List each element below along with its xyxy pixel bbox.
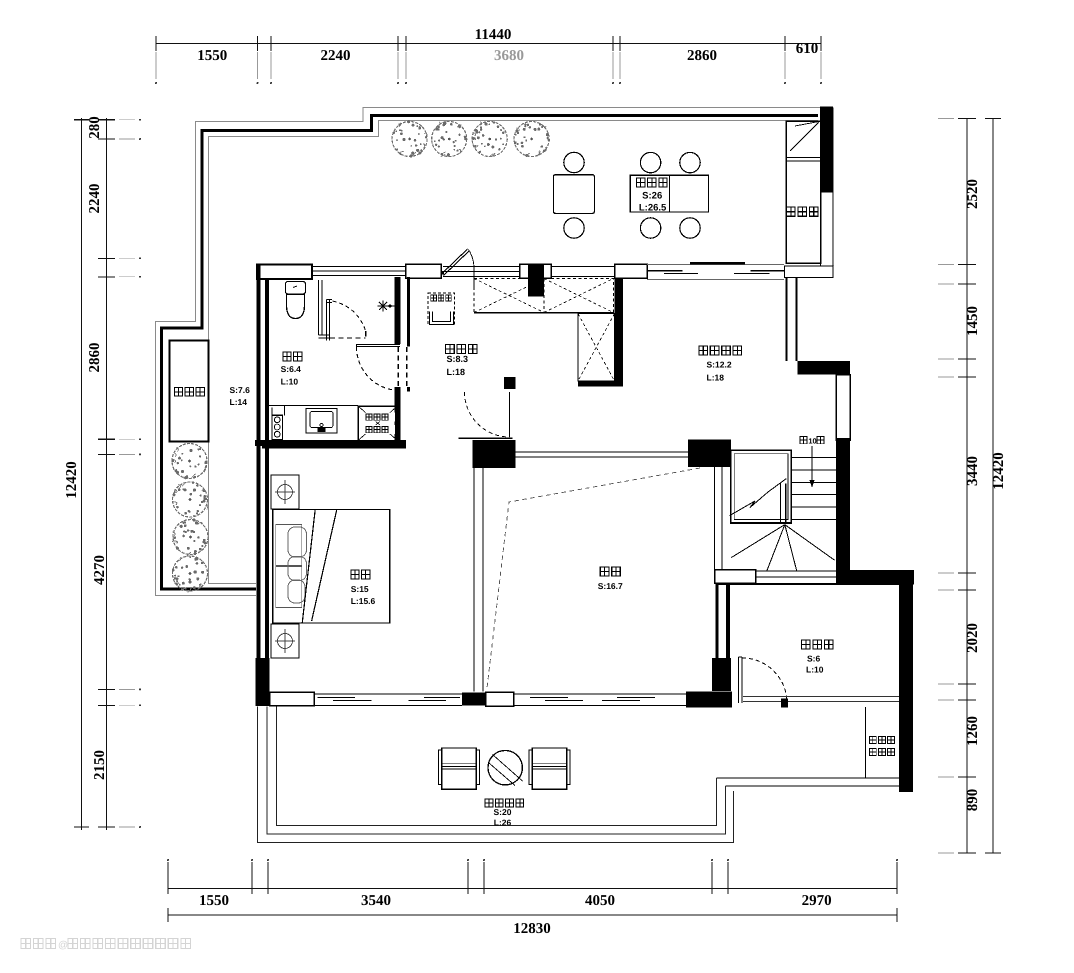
svg-text:L:10: L:10 bbox=[806, 665, 824, 675]
svg-text:S:20: S:20 bbox=[494, 807, 512, 817]
svg-text:2020: 2020 bbox=[965, 623, 981, 653]
svg-text:2860: 2860 bbox=[87, 343, 103, 373]
svg-text:S:7.6: S:7.6 bbox=[230, 385, 251, 395]
svg-text:12420: 12420 bbox=[991, 452, 1007, 490]
svg-text:12830: 12830 bbox=[513, 921, 551, 937]
svg-text:L:10: L:10 bbox=[281, 377, 299, 387]
svg-text:L:15.6: L:15.6 bbox=[351, 596, 376, 606]
svg-text:S:6.4: S:6.4 bbox=[281, 364, 302, 374]
svg-text:2520: 2520 bbox=[965, 179, 981, 209]
svg-text:12420: 12420 bbox=[64, 461, 80, 499]
svg-text:2240: 2240 bbox=[321, 48, 351, 64]
svg-text:2860: 2860 bbox=[687, 48, 717, 64]
svg-text:S:26: S:26 bbox=[642, 191, 662, 202]
svg-text:S:16.7: S:16.7 bbox=[598, 581, 623, 591]
svg-text:S:15: S:15 bbox=[351, 584, 369, 594]
svg-text:L:14: L:14 bbox=[230, 397, 248, 407]
svg-text:890: 890 bbox=[965, 789, 981, 812]
svg-text:L:26: L:26 bbox=[494, 818, 512, 828]
svg-text:1260: 1260 bbox=[965, 716, 981, 746]
svg-text:4270: 4270 bbox=[92, 555, 108, 585]
svg-text:280: 280 bbox=[87, 116, 103, 139]
svg-text:L:18: L:18 bbox=[707, 373, 725, 383]
svg-text:S:12.2: S:12.2 bbox=[707, 360, 732, 370]
svg-text:2970: 2970 bbox=[802, 893, 832, 909]
svg-text:S:8.3: S:8.3 bbox=[447, 354, 469, 364]
svg-text:L:18: L:18 bbox=[447, 367, 466, 377]
svg-text:2240: 2240 bbox=[87, 184, 103, 214]
svg-text:3540: 3540 bbox=[361, 893, 391, 909]
svg-text:2150: 2150 bbox=[92, 750, 108, 780]
svg-text:@: @ bbox=[58, 940, 68, 951]
svg-text:610: 610 bbox=[796, 41, 819, 57]
svg-text:L:26.5: L:26.5 bbox=[639, 203, 667, 214]
svg-text:11440: 11440 bbox=[475, 27, 512, 43]
svg-text:3680: 3680 bbox=[494, 48, 524, 64]
svg-text:1550: 1550 bbox=[199, 893, 229, 909]
svg-text:1550: 1550 bbox=[197, 48, 227, 64]
svg-text:3440: 3440 bbox=[965, 456, 981, 486]
svg-text:1450: 1450 bbox=[965, 306, 981, 336]
svg-text:10: 10 bbox=[808, 437, 816, 446]
svg-text:S:6: S:6 bbox=[807, 654, 821, 664]
svg-text:4050: 4050 bbox=[585, 893, 615, 909]
